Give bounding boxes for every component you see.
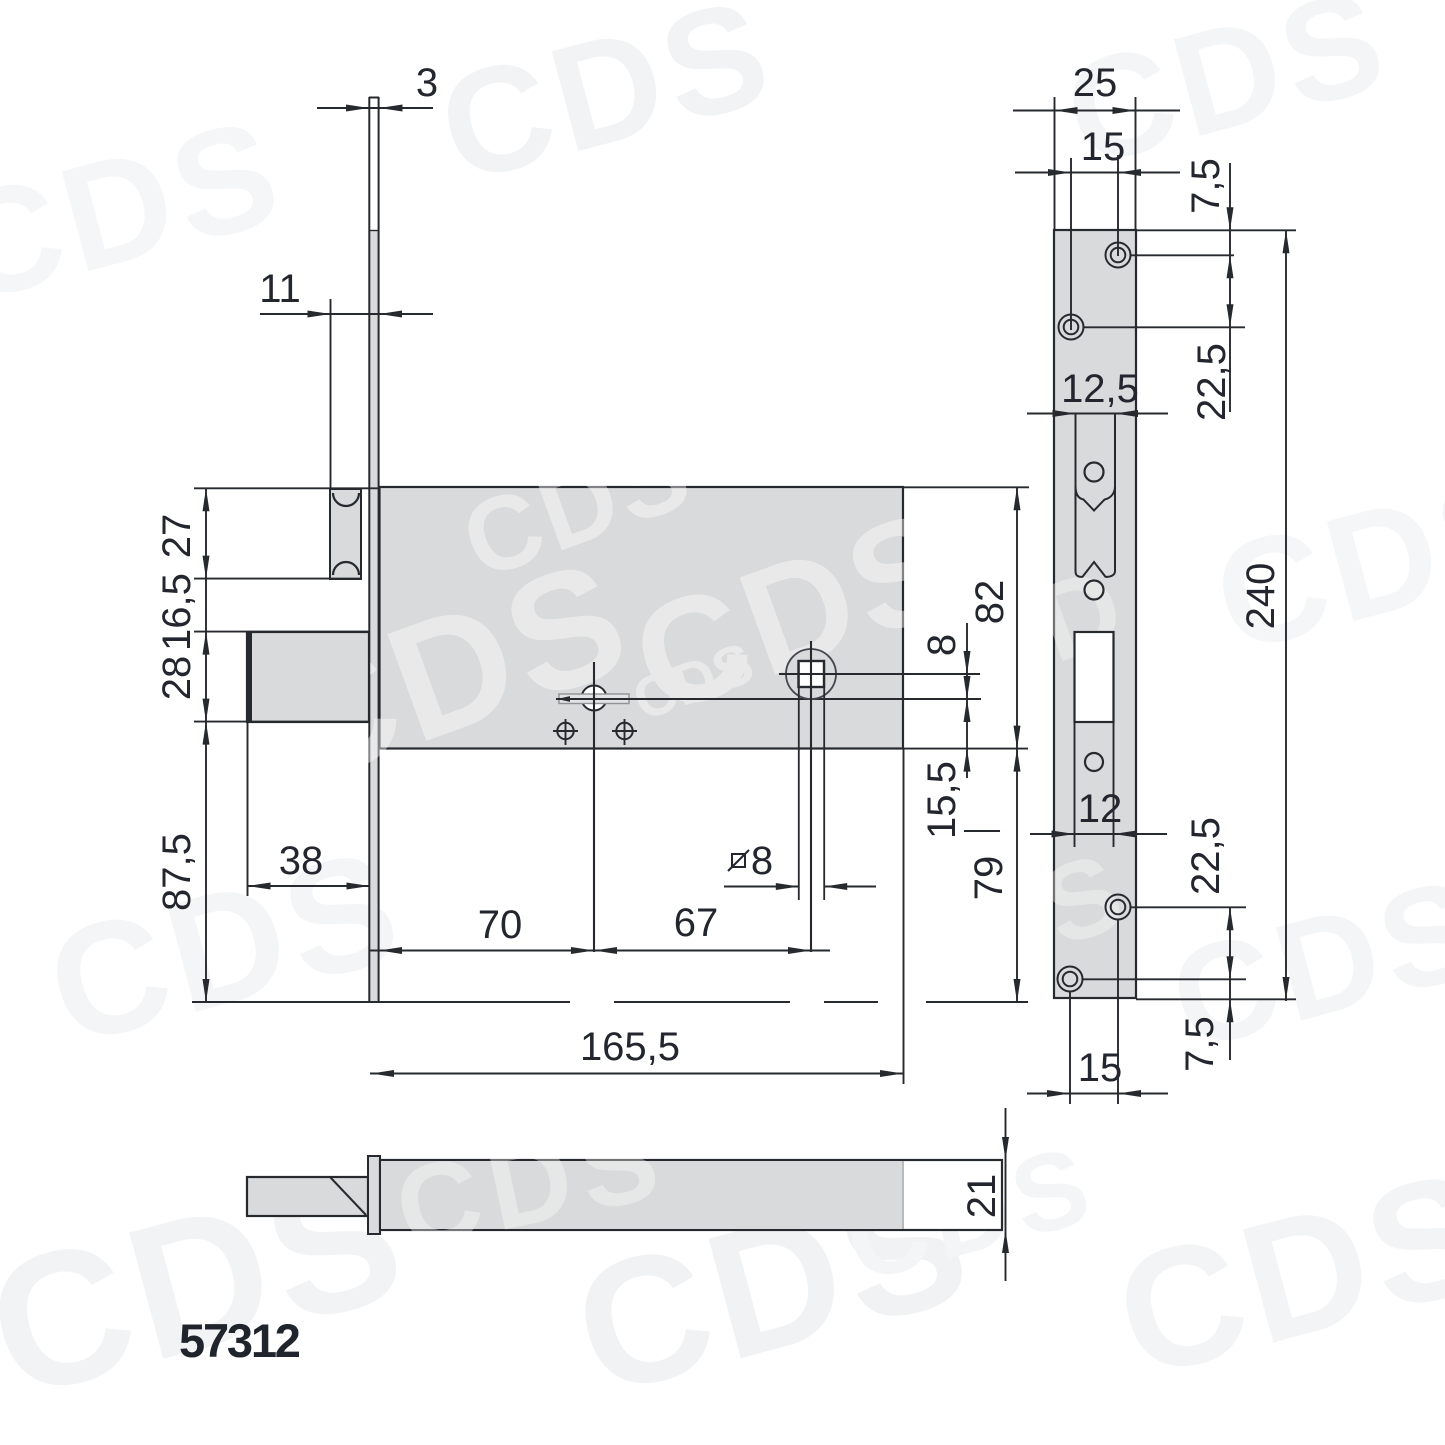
svg-text:12,5: 12,5 (1061, 367, 1139, 411)
svg-text:79: 79 (967, 856, 1011, 901)
svg-text:28: 28 (155, 656, 199, 701)
svg-text:7,5: 7,5 (1178, 1016, 1222, 1072)
svg-text:70: 70 (478, 903, 523, 947)
svg-text:240: 240 (1239, 563, 1283, 630)
svg-text:21: 21 (960, 1174, 1004, 1219)
svg-text:87,5: 87,5 (155, 833, 199, 911)
svg-text:165,5: 165,5 (580, 1025, 680, 1069)
svg-text:27: 27 (155, 514, 199, 559)
svg-text:15: 15 (1078, 1046, 1123, 1090)
svg-text:82: 82 (968, 580, 1012, 625)
svg-text:67: 67 (674, 901, 719, 945)
svg-text:15: 15 (1081, 125, 1126, 169)
svg-text:38: 38 (279, 839, 324, 883)
svg-text:8: 8 (920, 634, 964, 656)
svg-text:57312: 57312 (179, 1314, 300, 1367)
svg-text:22,5: 22,5 (1184, 817, 1228, 895)
svg-text:11: 11 (259, 267, 301, 311)
svg-text:7,5: 7,5 (1184, 158, 1228, 214)
svg-text:15,5: 15,5 (920, 761, 964, 839)
svg-text:8: 8 (751, 839, 773, 883)
svg-text:22,5: 22,5 (1190, 343, 1234, 421)
svg-text:16,5: 16,5 (155, 573, 199, 651)
svg-text:25: 25 (1073, 61, 1118, 105)
svg-text:3: 3 (416, 61, 438, 105)
svg-text:12: 12 (1078, 787, 1123, 831)
